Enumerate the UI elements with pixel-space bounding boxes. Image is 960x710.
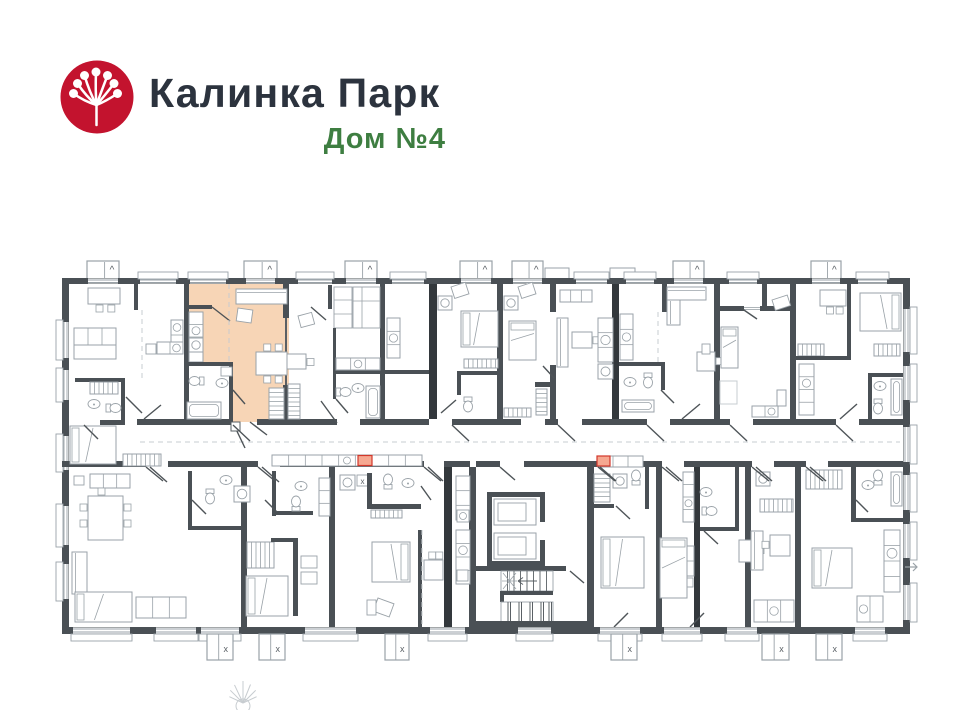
svg-text:^: ^ (267, 265, 272, 276)
svg-text:^: ^ (368, 265, 373, 276)
svg-text:^: ^ (695, 265, 700, 276)
svg-text:x: x (361, 477, 365, 486)
svg-text:x: x (627, 644, 632, 654)
svg-text:Дом №4: Дом №4 (324, 123, 446, 155)
svg-text:^: ^ (110, 265, 115, 276)
svg-text:x: x (223, 644, 228, 654)
svg-text:x: x (779, 644, 784, 654)
svg-text:Калинка Парк: Калинка Парк (149, 70, 440, 116)
svg-text:^: ^ (534, 265, 539, 276)
svg-text:x: x (832, 644, 837, 654)
svg-text:x: x (400, 644, 405, 654)
svg-text:^: ^ (483, 265, 488, 276)
svg-text:x: x (275, 644, 280, 654)
svg-text:^: ^ (832, 265, 837, 276)
